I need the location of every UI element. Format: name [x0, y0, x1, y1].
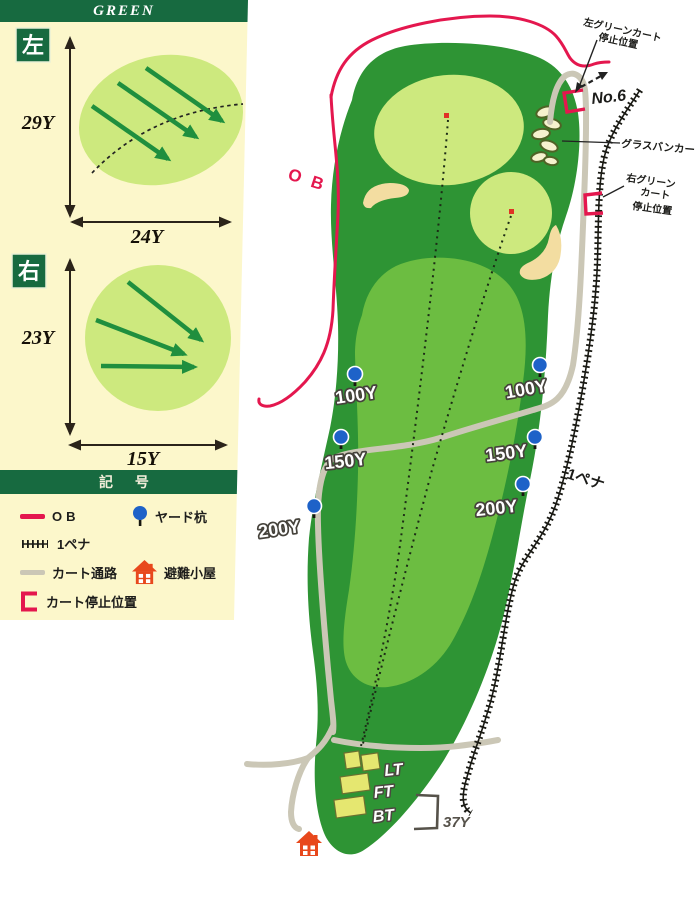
ob-line-left	[259, 95, 339, 406]
right-cart-stop-line3: 停止位置	[632, 199, 673, 217]
legend-shelter-label: 避難小屋	[164, 563, 216, 582]
legend-cart-stop-label: カート停止位置	[46, 592, 137, 611]
yard-label-left-200: 200Y	[257, 516, 301, 542]
legend-yard-stake: ヤード杭	[132, 505, 246, 528]
flag-dot-left-green	[444, 113, 449, 118]
shelter-icon	[296, 831, 322, 856]
left-green-diagram: 左 29Y 24Y	[0, 22, 248, 248]
left-green-depth: 29Y	[21, 112, 56, 134]
penalty-line-icon	[20, 539, 50, 549]
legend-one-penalty-label: 1ペナ	[57, 534, 90, 553]
right-cart-stop-leader	[603, 186, 624, 197]
right-green-depth: 23Y	[21, 327, 56, 349]
green-panel-header: GREEN	[0, 0, 248, 22]
yard-pin-icon	[132, 505, 148, 528]
tee-label-lt: LT	[384, 761, 405, 780]
cart-stop-icon	[20, 591, 39, 612]
shelter-icon	[132, 560, 157, 585]
legend-ob: OB	[20, 509, 132, 524]
tee-depth-bracket	[414, 795, 438, 829]
tee-depth-label: 37Y	[443, 814, 472, 831]
golf-hole-guide: O B No.6 グラスバンカー 左グリーンカート 停止位置 右グリーン カート…	[0, 0, 700, 920]
tee-label-bt: BT	[372, 807, 396, 826]
legend-shelter: 避難小屋	[132, 560, 246, 585]
penalty-label: 1ペナ	[565, 466, 607, 494]
cart-path-icon	[20, 570, 45, 575]
legend-one-penalty: 1ペナ	[20, 534, 132, 553]
grass-bunker-label: グラスバンカー	[621, 137, 696, 156]
legend-ob-label: OB	[52, 509, 80, 524]
ob-label: O B	[286, 165, 329, 195]
legend-yard-stake-label: ヤード杭	[155, 507, 207, 526]
right-green-diagram: 右 23Y 15Y	[0, 248, 248, 470]
green-info-sidebar: GREEN 左 29Y 24Y	[0, 0, 248, 620]
ob-line-icon	[20, 514, 45, 519]
right-green-badge-label: 右	[18, 259, 40, 284]
legend-cart-stop: カート停止位置	[20, 591, 246, 612]
next-hole-label: No.6	[591, 87, 627, 108]
legend-cart-path-label: カート通路	[52, 563, 117, 582]
right-green-width: 15Y	[127, 448, 161, 470]
flag-dot-right-green	[509, 209, 514, 214]
legend-header: 記 号	[0, 470, 248, 494]
tee-label-ft: FT	[373, 783, 395, 802]
left-green-badge-label: 左	[22, 33, 44, 58]
left-green-width: 24Y	[130, 226, 165, 248]
right-green-shape	[85, 265, 231, 411]
legend: OB ヤード杭 1ペナ カート通路	[0, 494, 248, 620]
legend-cart-path: カート通路	[20, 563, 132, 582]
